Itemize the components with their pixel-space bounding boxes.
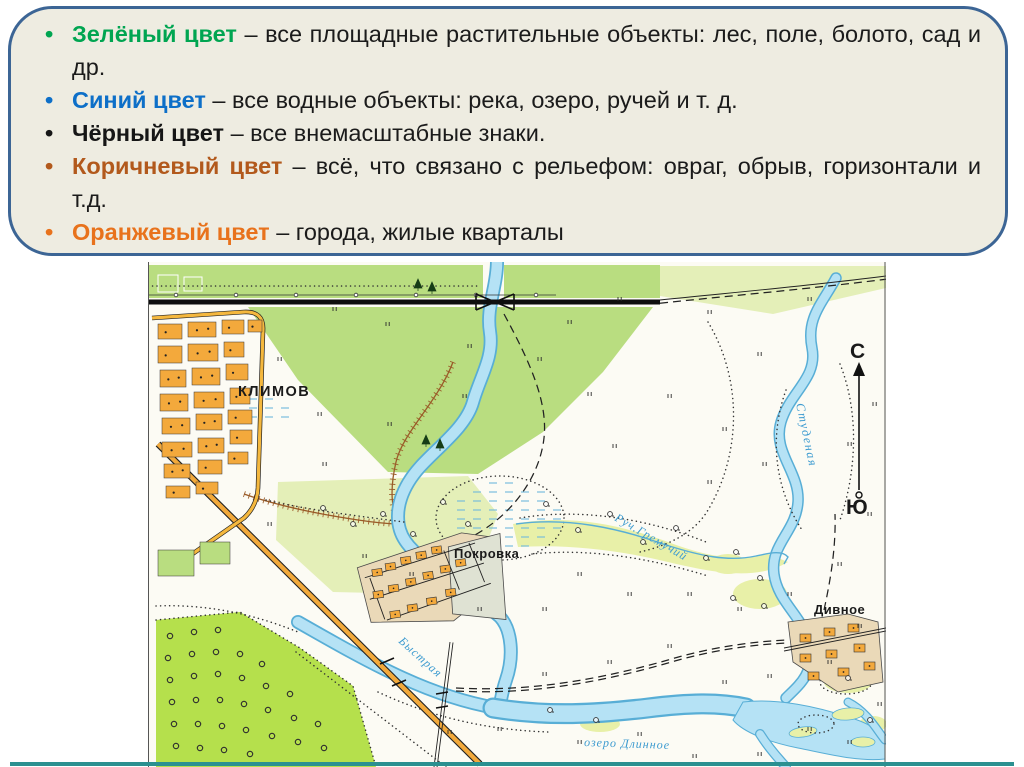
- legend-list: Зелёный цвет – все площадные растительны…: [39, 18, 981, 249]
- map-label-klimov: КЛИМОВ: [238, 384, 310, 400]
- legend-item-brown: Коричневый цвет – всё, что связано с рел…: [39, 150, 981, 216]
- legend-item-orange: Оранжевый цвет – города, жилые кварталы: [39, 216, 981, 249]
- legend-term: Синий цвет: [72, 87, 206, 113]
- map-label-lake-dlinnoye: озеро Длинное: [584, 735, 670, 752]
- map-label-divnoe: Дивное: [814, 602, 865, 617]
- legend-box: Зелёный цвет – все площадные растительны…: [8, 6, 1008, 256]
- topographic-map: С Ю КЛИМОВ Покровка Дивное Студеная Руч.…: [148, 262, 886, 767]
- bullet-icon: [45, 216, 53, 249]
- legend-desc: – все внемасштабные знаки.: [231, 120, 546, 146]
- legend-term: Чёрный цвет: [72, 120, 224, 146]
- bullet-icon: [45, 117, 53, 150]
- legend-item-green: Зелёный цвет – все площадные растительны…: [39, 18, 981, 84]
- map-label-pokrovka: Покровка: [454, 546, 520, 561]
- bullet-icon: [45, 150, 53, 183]
- compass-south-label: Ю: [846, 496, 868, 519]
- bullet-icon: [45, 84, 53, 117]
- legend-item-blue: Синий цвет – все водные объекты: река, о…: [39, 84, 981, 117]
- legend-desc: – города, жилые кварталы: [276, 219, 564, 245]
- bullet-icon: [45, 18, 53, 51]
- legend-term: Зелёный цвет: [72, 21, 237, 47]
- legend-item-black: Чёрный цвет – все внемасштабные знаки.: [39, 117, 981, 150]
- bottom-accent-bar: [10, 762, 1014, 766]
- map-graphic: С Ю КЛИМОВ Покровка Дивное Студеная Руч.…: [148, 262, 886, 767]
- legend-term: Коричневый цвет: [72, 153, 282, 179]
- legend-desc: – все водные объекты: река, озеро, ручей…: [212, 87, 737, 113]
- legend-term: Оранжевый цвет: [72, 219, 270, 245]
- compass-north-label: С: [850, 340, 865, 363]
